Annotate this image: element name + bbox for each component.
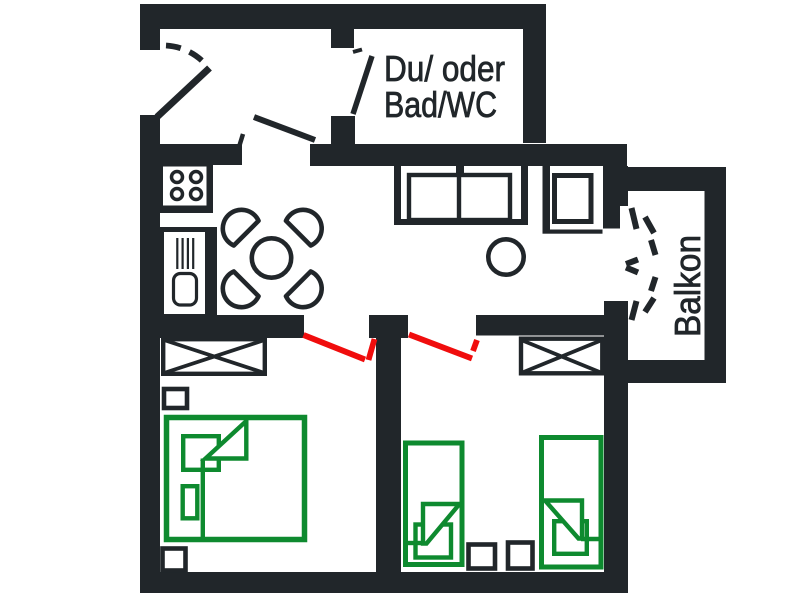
svg-text:Du/ oder: Du/ oder (384, 48, 505, 89)
svg-text:Bad/WC: Bad/WC (384, 84, 497, 125)
svg-text:Balkon: Balkon (667, 235, 708, 337)
